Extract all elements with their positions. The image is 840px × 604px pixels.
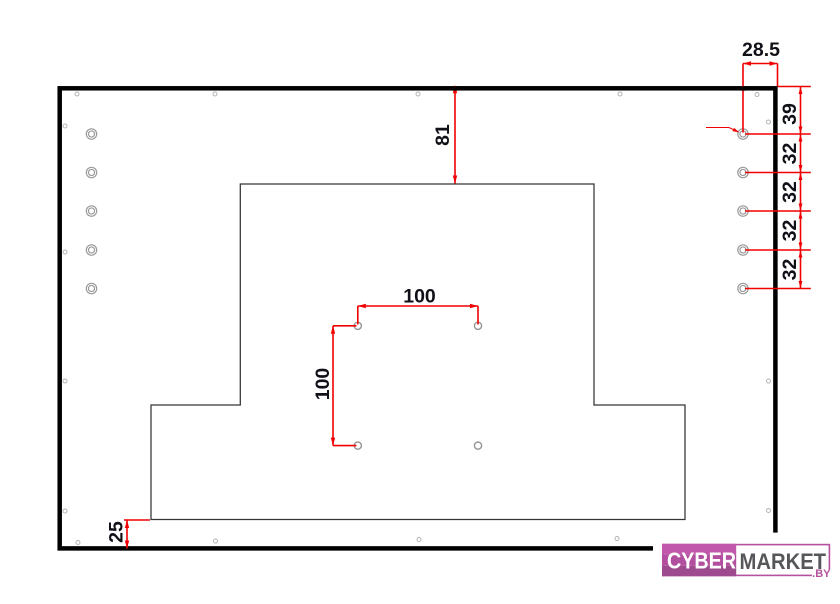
svg-text:CYBER: CYBER	[667, 547, 736, 574]
svg-text:39: 39	[779, 103, 801, 125]
svg-text:32: 32	[779, 220, 801, 242]
svg-text:100: 100	[403, 286, 436, 308]
svg-text:32: 32	[779, 181, 801, 203]
svg-text:32: 32	[779, 143, 801, 165]
svg-text:.BY: .BY	[812, 568, 831, 580]
svg-text:100: 100	[312, 368, 334, 401]
svg-text:81: 81	[432, 124, 454, 146]
svg-text:28.5: 28.5	[742, 39, 780, 61]
svg-text:32: 32	[779, 259, 801, 281]
svg-text:25: 25	[106, 521, 128, 543]
